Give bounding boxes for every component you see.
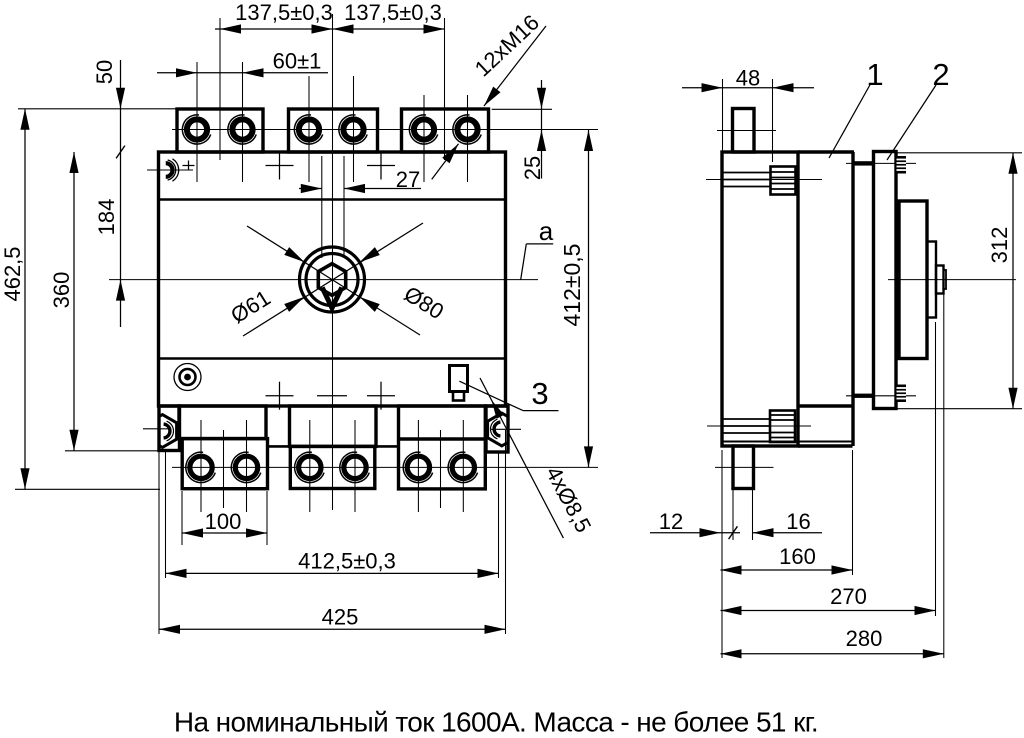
svg-text:60±1: 60±1 xyxy=(273,49,322,74)
svg-text:a: a xyxy=(539,216,554,246)
svg-text:На номинальный ток 1600А. Масс: На номинальный ток 1600А. Масса - не бол… xyxy=(174,707,818,738)
svg-text:312: 312 xyxy=(987,227,1012,264)
svg-text:270: 270 xyxy=(830,584,867,609)
svg-text:412,5±0,3: 412,5±0,3 xyxy=(298,549,396,574)
svg-text:280: 280 xyxy=(846,626,883,651)
svg-text:50: 50 xyxy=(92,60,117,84)
svg-text:412±0,5: 412±0,5 xyxy=(559,244,585,327)
svg-text:137,5±0,3: 137,5±0,3 xyxy=(344,0,442,25)
svg-text:160: 160 xyxy=(779,544,816,569)
svg-text:48: 48 xyxy=(736,66,760,91)
svg-text:3: 3 xyxy=(531,376,548,411)
svg-text:16: 16 xyxy=(786,509,810,534)
svg-text:2: 2 xyxy=(932,57,949,92)
svg-text:25: 25 xyxy=(520,156,545,180)
svg-text:12: 12 xyxy=(659,509,683,534)
svg-text:27: 27 xyxy=(396,167,420,192)
svg-text:100: 100 xyxy=(205,509,242,534)
svg-text:462,5: 462,5 xyxy=(0,246,25,301)
svg-text:1: 1 xyxy=(866,57,883,92)
svg-text:184: 184 xyxy=(94,199,119,236)
svg-text:425: 425 xyxy=(322,605,359,630)
svg-text:360: 360 xyxy=(49,272,74,309)
svg-text:137,5±0,3: 137,5±0,3 xyxy=(235,0,333,25)
